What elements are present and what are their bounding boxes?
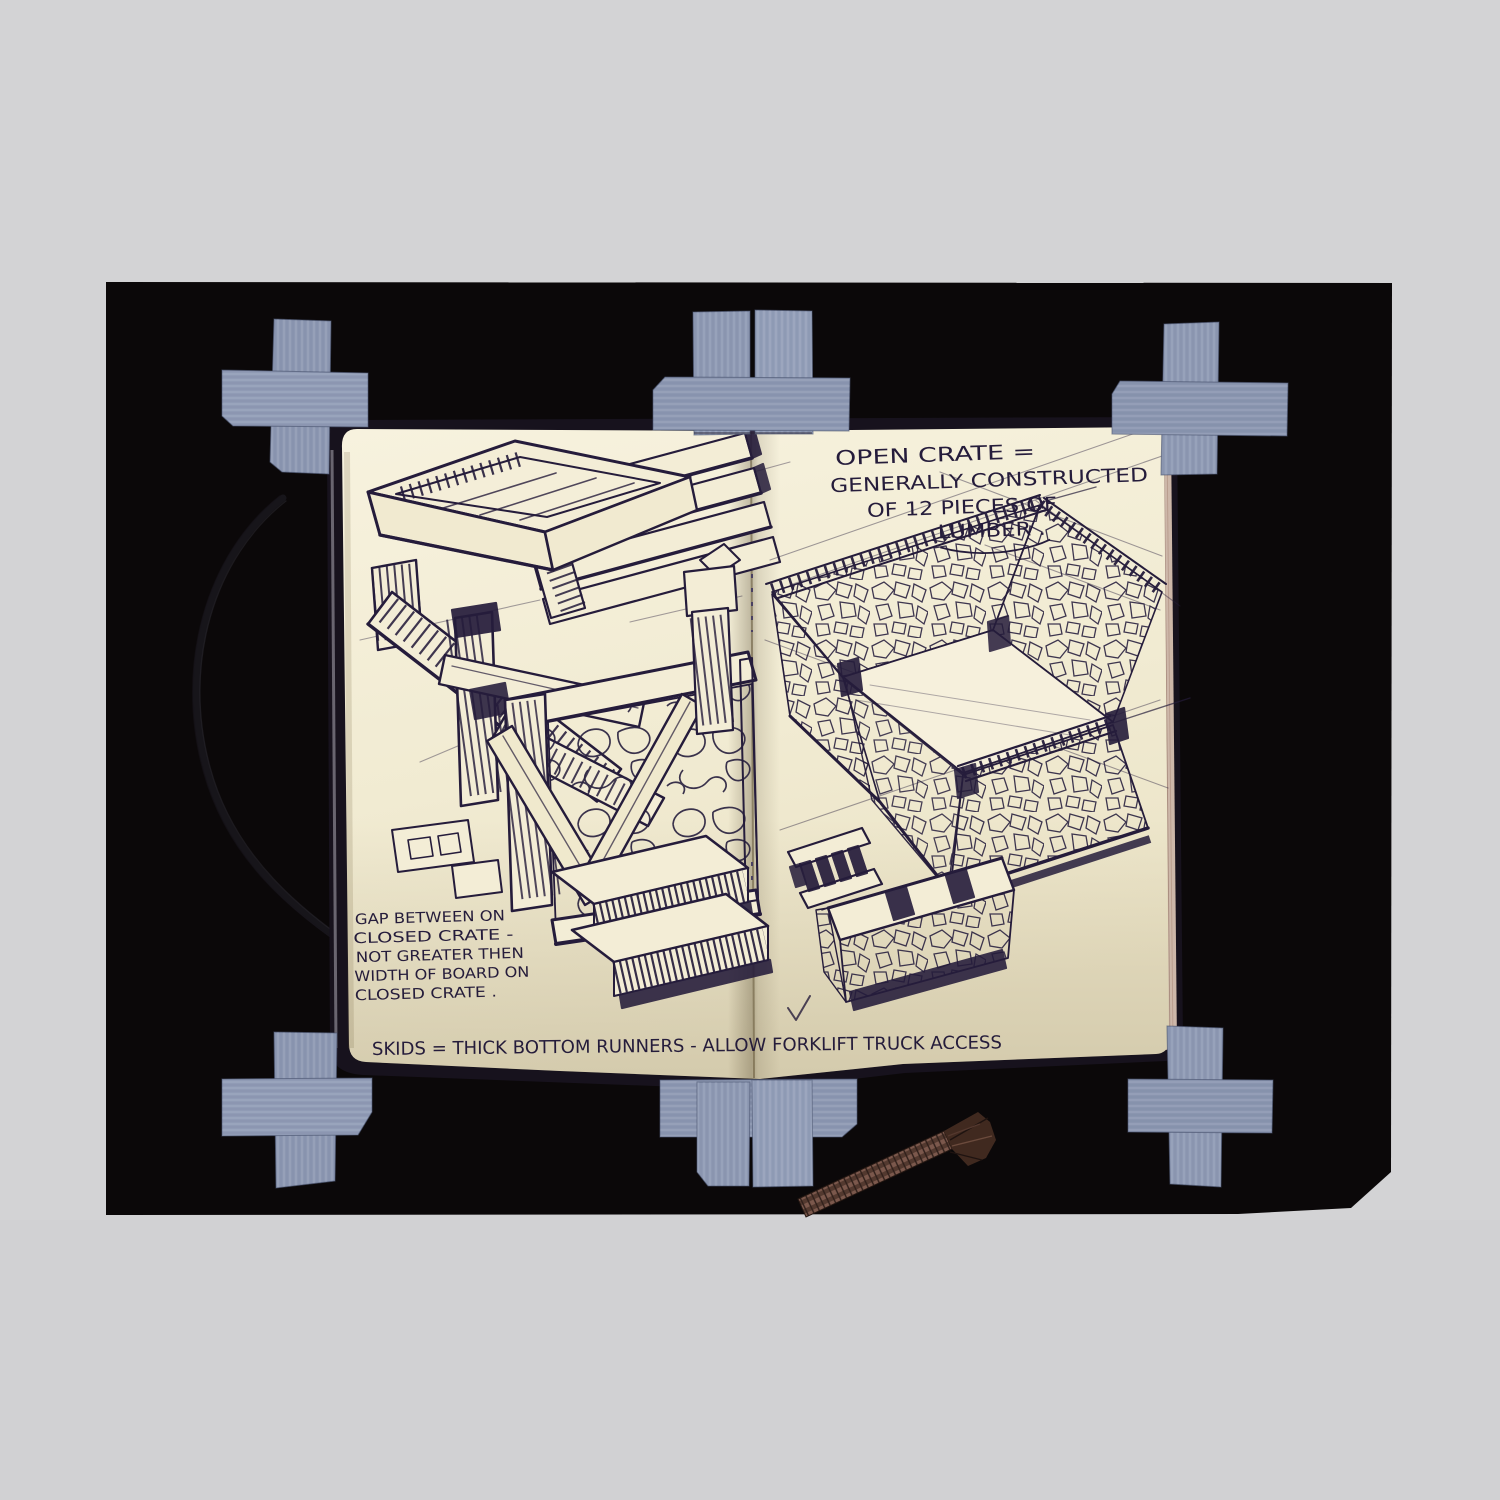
open-crate-note-line4: LUMBER . — [937, 518, 1046, 544]
scanned-photo: OPEN CRATE = GENERALLY CONSTRUCTED OF 12… — [0, 0, 1500, 1500]
scanner-backdrop-lower — [0, 1220, 1500, 1500]
photo-scene: OPEN CRATE = GENERALLY CONSTRUCTED OF 12… — [0, 0, 1500, 1500]
